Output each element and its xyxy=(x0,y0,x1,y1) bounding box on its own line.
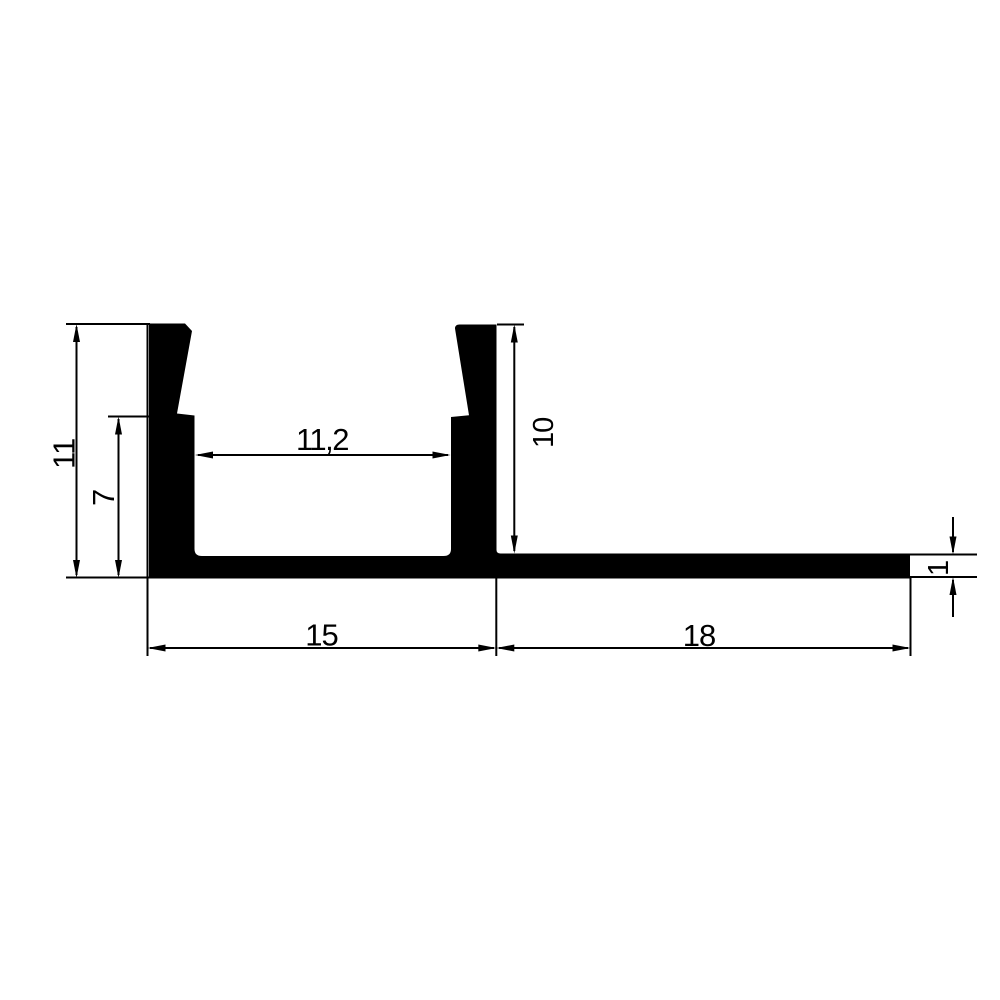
svg-text:11,2: 11,2 xyxy=(296,422,348,457)
svg-text:1: 1 xyxy=(923,560,955,576)
svg-text:11: 11 xyxy=(47,439,82,469)
svg-text:15: 15 xyxy=(305,618,337,653)
svg-text:18: 18 xyxy=(683,618,715,653)
svg-text:7: 7 xyxy=(86,489,121,506)
svg-text:10: 10 xyxy=(528,418,560,448)
